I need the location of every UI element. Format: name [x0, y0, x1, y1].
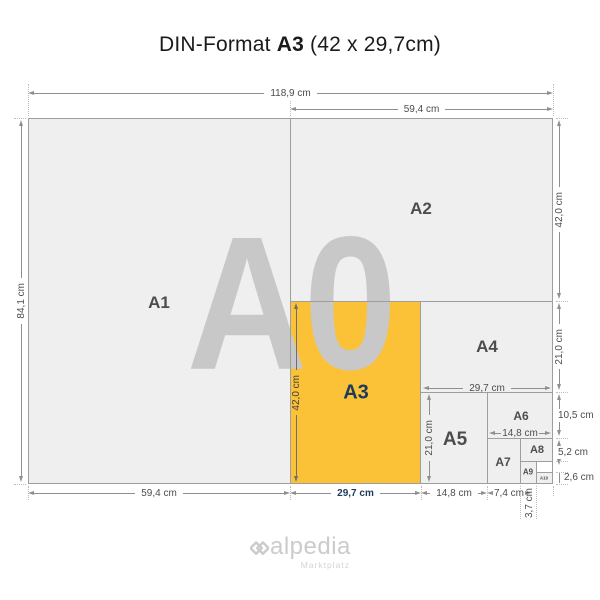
arrow-right-icon — [545, 386, 551, 390]
dim-a9-width: 3,7 cm — [523, 488, 535, 520]
dim-a10-height-line — [559, 473, 560, 483]
label-a10: A10 — [540, 476, 548, 481]
dim-a6-width: 14,8 cm — [489, 427, 551, 439]
guide-line — [14, 484, 26, 485]
guide-line — [553, 486, 554, 496]
guide-line — [487, 486, 488, 500]
dim-a4-width: 29,7 cm — [423, 382, 551, 394]
dim-total-width: 118,9 cm — [28, 87, 553, 99]
guide-line — [14, 118, 26, 119]
title-format: A3 — [277, 33, 304, 56]
dim-total-height-label: 84,1 cm — [16, 278, 27, 324]
guide-line — [556, 118, 568, 119]
dim-a6-height: 10,5 cm — [553, 394, 565, 436]
guide-line — [28, 84, 29, 116]
dim-a8-height-label: 5,2 cm — [558, 446, 588, 459]
guide-line — [290, 101, 291, 116]
arrow-down-icon — [19, 476, 23, 482]
dim-a7-width: 7,4 cm — [487, 487, 520, 499]
guide-line — [536, 486, 537, 519]
dim-a4-width-label: 29,7 cm — [463, 383, 511, 394]
guide-line — [556, 472, 568, 473]
dim-a6-width-label: 14,8 cm — [501, 428, 539, 439]
dim-a3-height-label: 42,0 cm — [291, 370, 302, 416]
title-prefix: DIN-Format — [159, 33, 271, 56]
arrow-down-icon — [557, 293, 561, 299]
dim-total-height: 84,1 cm — [15, 120, 27, 482]
dim-half-width: 59,4 cm — [290, 103, 553, 115]
dim-a2-height: 42,0 cm — [553, 120, 565, 299]
label-a9: A9 — [523, 468, 533, 477]
guide-line — [556, 301, 568, 302]
dim-a9-width-label: 3,7 cm — [524, 488, 535, 518]
logo-wordmark: alpedia — [270, 533, 351, 561]
divider-a2-bottom — [290, 301, 553, 302]
a10-empty-space — [537, 462, 552, 472]
guide-line — [553, 84, 554, 116]
arrow-down-icon — [557, 384, 561, 390]
dim-a10-height-label: 2,6 cm — [564, 472, 594, 483]
dim-a3-height: 42,0 cm — [290, 303, 302, 482]
dim-a8-height: 5,2 cm — [553, 440, 565, 460]
alpedia-logo: alpedia Marktplatz — [248, 533, 358, 569]
logo-subtitle: Marktplatz — [301, 560, 350, 570]
label-a1: A1 — [148, 293, 170, 313]
dim-a1-width-label: 59,4 cm — [135, 488, 183, 499]
label-a7: A7 — [495, 455, 510, 469]
title-suffix: (42 x 29,7cm) — [310, 33, 441, 56]
guide-line — [421, 486, 422, 500]
label-a8: A8 — [530, 444, 544, 456]
alpedia-clover-icon — [250, 540, 269, 562]
dim-a5-width-label: 14,8 cm — [430, 488, 478, 499]
guide-line — [520, 486, 521, 519]
dim-a5-width: 14,8 cm — [421, 487, 487, 499]
label-a6: A6 — [513, 409, 528, 423]
dim-a10-height: 2,6 cm — [564, 472, 594, 483]
arrow-down-icon — [294, 476, 298, 482]
dim-a5-height: 21,0 cm — [423, 394, 435, 482]
dim-a1-width: 59,4 cm — [28, 487, 290, 499]
arrow-right-icon — [545, 431, 551, 435]
guide-line — [556, 392, 568, 393]
label-a4: A4 — [476, 337, 498, 357]
divider-a10-top — [536, 472, 553, 473]
label-a2: A2 — [410, 199, 432, 219]
page-title: DIN-Format A3 (42 x 29,7cm) — [0, 33, 600, 57]
guide-line — [556, 438, 568, 439]
dim-a6-height-label: 10,5 cm — [558, 409, 594, 422]
dim-a4-height-label: 21,0 cm — [554, 324, 565, 370]
guide-line — [290, 486, 291, 500]
dim-a3-width: 29,7 cm — [290, 487, 421, 499]
dim-half-width-label: 59,4 cm — [398, 104, 446, 115]
dim-total-width-label: 118,9 cm — [264, 88, 316, 99]
guide-line — [28, 486, 29, 500]
dim-a4-height: 21,0 cm — [553, 303, 565, 390]
guide-line — [556, 461, 568, 462]
arrow-down-icon — [557, 430, 561, 436]
dim-a3-width-label: 29,7 cm — [331, 488, 380, 499]
label-a3: A3 — [343, 382, 369, 405]
dim-a2-height-label: 42,0 cm — [554, 187, 565, 233]
dim-a5-height-label: 21,0 cm — [424, 415, 435, 461]
arrow-down-icon — [427, 476, 431, 482]
label-a5: A5 — [443, 429, 467, 451]
arrow-down-icon — [557, 459, 561, 465]
guide-line — [556, 484, 568, 485]
